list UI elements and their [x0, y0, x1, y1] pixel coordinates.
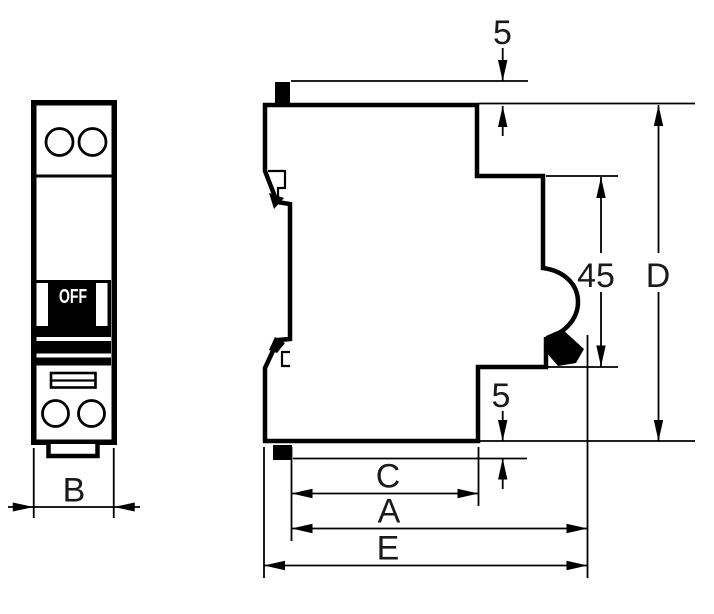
arrowhead-icon	[498, 459, 507, 480]
arrowhead-icon	[654, 420, 663, 441]
arrowhead-icon	[292, 524, 313, 533]
toggle-handle-side	[546, 329, 584, 366]
arrowhead-icon	[498, 60, 507, 81]
dim-45-label: 45	[577, 257, 615, 295]
dim-a-label: A	[378, 493, 401, 531]
dim-b-label: B	[63, 472, 86, 510]
arrowhead-icon	[498, 420, 507, 441]
dim-5-bottom-label: 5	[492, 377, 511, 415]
arrowhead-icon	[264, 561, 285, 570]
dim-c-label: C	[376, 458, 401, 496]
toggle-switch: OFF	[37, 280, 112, 337]
dim-d-label: D	[646, 257, 671, 295]
switch-state-label: OFF	[59, 286, 87, 308]
arrowhead-icon	[654, 105, 663, 126]
terminal-screw-bottom-right-icon	[79, 401, 105, 427]
terminal-screw-bottom-left-icon	[43, 401, 69, 427]
dim-e: E	[264, 530, 588, 571]
dim-b: B	[8, 448, 140, 518]
din-clip-bottom	[273, 445, 292, 460]
dim-e-label: E	[377, 530, 400, 568]
arrowhead-icon	[596, 346, 605, 367]
breaker-side-profile	[265, 105, 578, 441]
breaker-front-body	[34, 103, 115, 443]
label-window	[51, 373, 96, 388]
breaker-dimension-drawing: OFF B	[0, 0, 714, 614]
dim-a: A	[292, 493, 588, 534]
front-stripe-1	[37, 341, 112, 354]
arrowhead-icon	[567, 561, 588, 570]
dim-5-top-label: 5	[493, 14, 512, 52]
arrowhead-icon	[567, 524, 588, 533]
bottom-mounting-tab	[49, 444, 98, 456]
front-view: OFF	[34, 103, 115, 456]
arrowhead-icon	[498, 106, 507, 127]
terminal-screw-top-right-icon	[79, 129, 106, 156]
arrowhead-icon	[114, 503, 135, 512]
toggle-slot-left	[37, 283, 49, 326]
terminal-screw-top-left-icon	[46, 129, 73, 156]
side-view	[265, 82, 584, 460]
toggle-slot-right	[96, 283, 108, 326]
arrowhead-icon	[13, 503, 34, 512]
arrowhead-icon	[596, 177, 605, 198]
dim-d: D	[646, 105, 671, 441]
din-clip-top	[275, 82, 290, 103]
front-stripe-2	[37, 358, 112, 366]
arrowhead-icon	[458, 489, 479, 498]
arrowhead-icon	[292, 489, 313, 498]
drawing-canvas: OFF B	[0, 0, 714, 614]
